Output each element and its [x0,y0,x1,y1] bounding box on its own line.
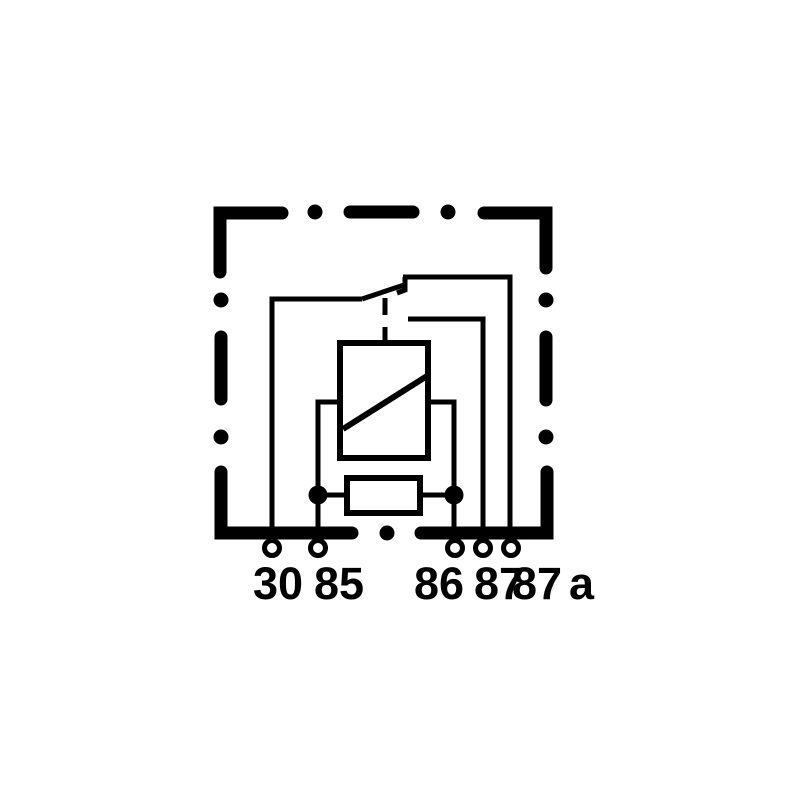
housing-corner-top-right [484,213,546,268]
junction-dot-left [309,486,328,505]
housing-dot [539,293,554,308]
housing-dot [214,293,229,308]
terminal-label-30: 30 [253,558,303,609]
relay-coil-symbol [340,343,428,458]
terminal-pin-86 [448,541,463,556]
terminal-pin-87 [476,541,491,556]
terminal-label-87a-suffix: a [569,558,595,609]
housing-corner-bottom-left [221,472,352,533]
junction-dot-right [445,486,464,505]
housing-dot [539,430,554,445]
resistor-box [347,478,420,513]
terminal-pin-30 [265,541,280,556]
terminal-pin-87a [504,541,519,556]
terminal-pin-85 [311,541,326,556]
terminal-label-85: 85 [314,558,364,609]
housing-dot [441,205,456,220]
terminal-label-87a-number: 87 [512,558,562,609]
housing-dot [380,526,395,541]
terminal-label-86: 86 [414,558,464,609]
relay-diagram-page: 30 85 86 87 87 a [0,0,800,800]
wire-coil-to-terminal-85 [318,402,340,541]
relay-circuit-diagram: 30 85 86 87 87 a [0,0,800,800]
wire-coil-to-terminal-86 [428,402,454,541]
housing-dot [214,430,229,445]
housing-dot [308,205,323,220]
terminal-labels: 30 85 86 87 87 a [253,558,595,609]
terminal-pins [265,541,519,556]
housing-corner-top-left [220,213,282,272]
